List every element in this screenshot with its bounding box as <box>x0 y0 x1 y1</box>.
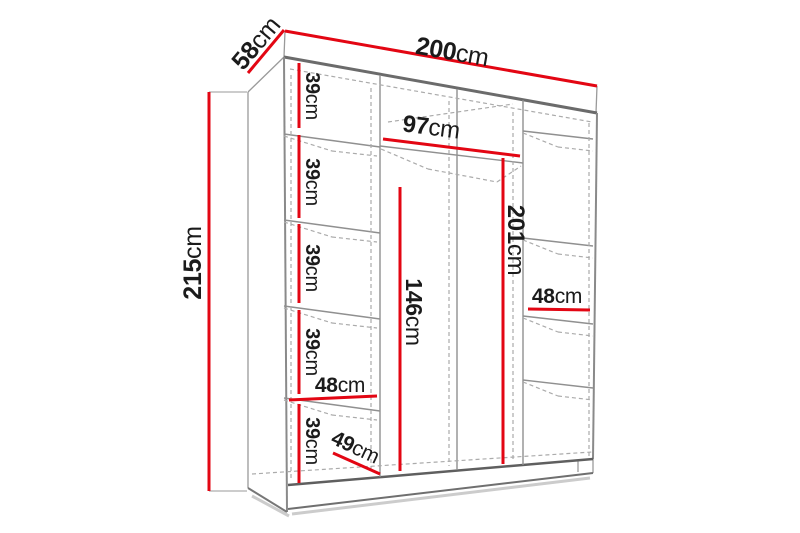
witness-lines <box>209 92 247 491</box>
label-shelf-gap-4: 39cm <box>301 328 323 376</box>
shelf-line <box>523 316 593 324</box>
dim-line-right-col-width <box>528 309 590 310</box>
dashed-line <box>332 151 377 156</box>
shelf-line <box>523 238 593 246</box>
label-shelf-gap-5: 39cm <box>301 417 323 465</box>
front-right-edge <box>593 113 597 459</box>
top-face-left-cap <box>284 31 285 57</box>
label-left-col-width: 48cm <box>315 374 365 397</box>
front-left-edge <box>284 57 287 512</box>
label-shelf-gap-2: 39cm <box>301 158 323 206</box>
dashed-line <box>332 237 377 242</box>
dashed-line <box>497 166 521 182</box>
plinth-shadow <box>292 478 590 514</box>
side-panel-bottom-edge <box>248 488 287 512</box>
dashed-line <box>558 396 593 400</box>
dim-line-left-col-width <box>289 396 377 400</box>
dashed-line <box>381 149 428 169</box>
page-root: 200cm 58cm 215cm 97cm 201cm 146cm 48cm 4… <box>0 0 800 533</box>
plinth-bottom-edge <box>288 473 593 509</box>
label-hanging-height: 146cm <box>401 278 427 346</box>
label-right-col-width: 48cm <box>532 285 582 308</box>
dashed-line <box>332 323 377 328</box>
label-interior-height: 201cm <box>502 205 529 276</box>
shelf-line <box>523 131 593 139</box>
dashed-line <box>558 254 593 258</box>
dashed-line <box>332 415 377 420</box>
dashed-line <box>558 332 593 336</box>
wardrobe-diagram: 200cm 58cm 215cm 97cm 201cm 146cm 48cm 4… <box>0 0 800 533</box>
dashed-line <box>428 169 497 182</box>
floor-front-edge <box>288 459 593 485</box>
dashed-line <box>558 147 593 151</box>
label-middle-width: 97cm <box>401 111 462 145</box>
label-shelf-gap-3: 39cm <box>301 244 323 292</box>
top-face-right-cap <box>596 86 597 113</box>
label-shelf-gap-1: 39cm <box>301 72 323 120</box>
front-top-edge <box>284 57 597 113</box>
label-height: 215cm <box>179 226 207 300</box>
shelf-line <box>523 380 593 388</box>
left-foot-shadow <box>252 496 289 516</box>
label-width: 200cm <box>414 31 491 71</box>
dimension-lines <box>209 30 597 491</box>
